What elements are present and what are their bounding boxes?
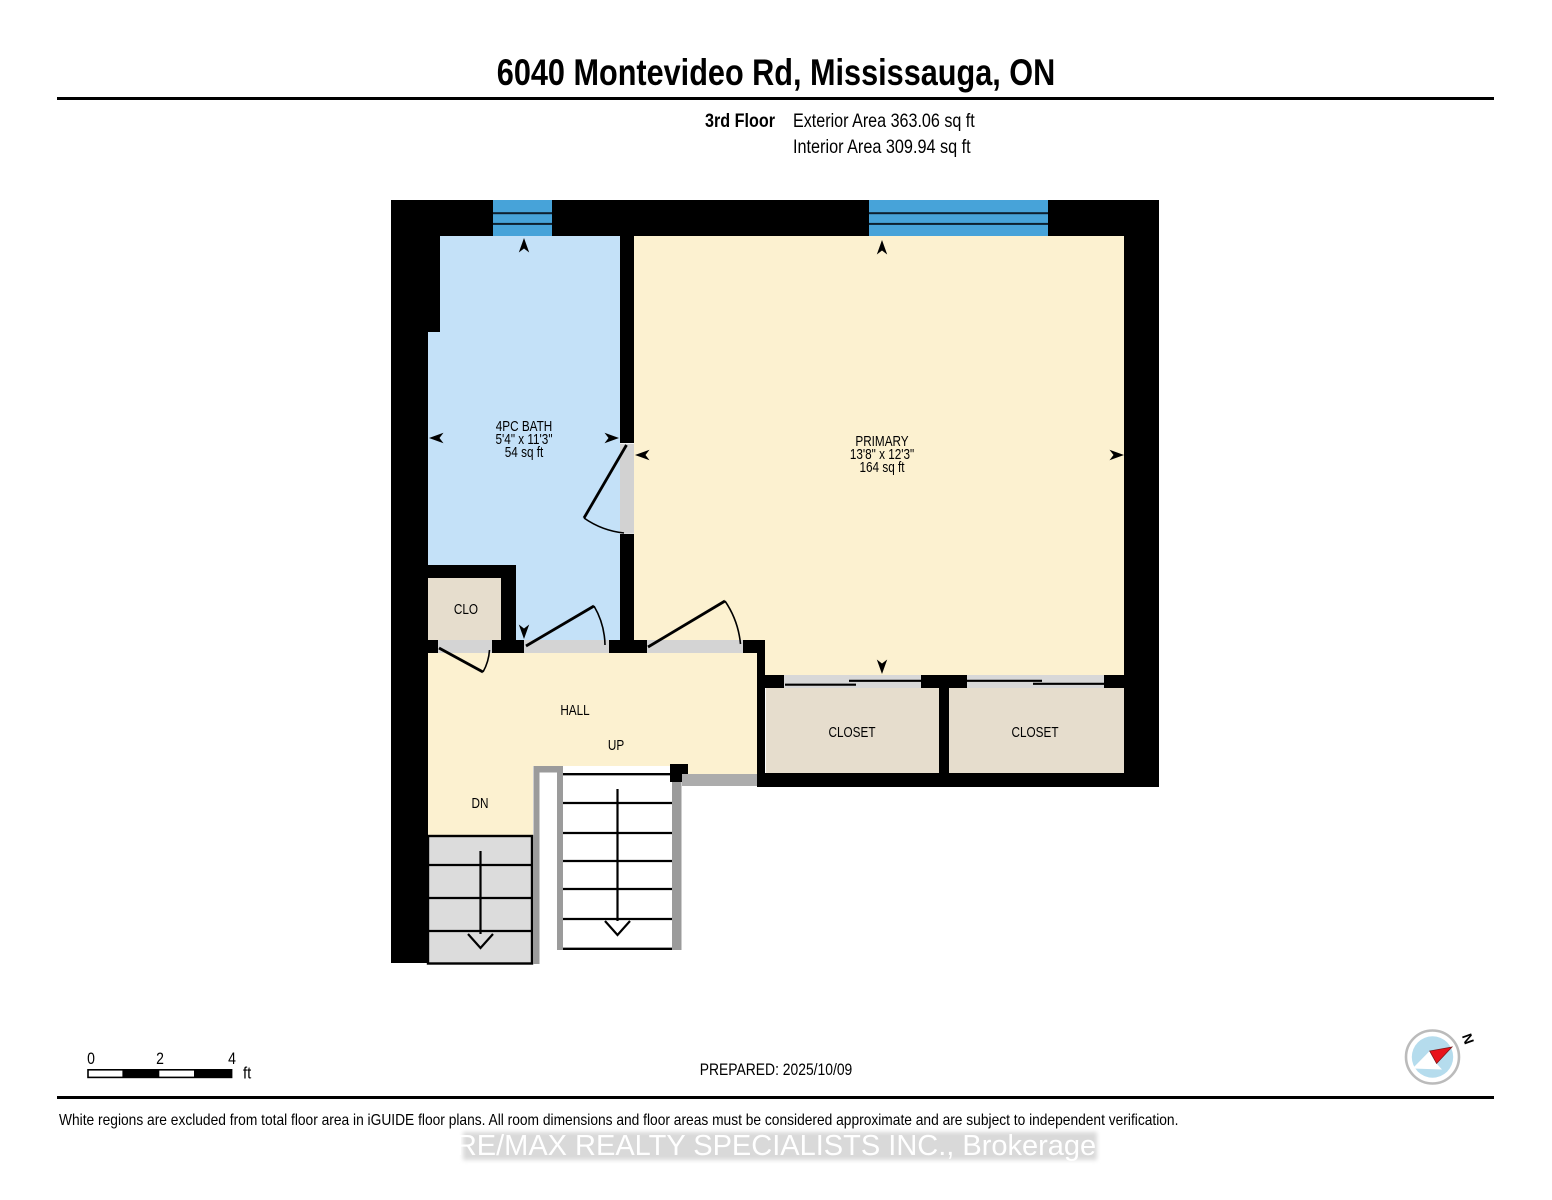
svg-text:HALL: HALL — [560, 702, 589, 718]
svg-text:PREPARED: 2025/10/09: PREPARED: 2025/10/09 — [700, 1061, 853, 1079]
svg-text:ft: ft — [243, 1065, 252, 1083]
svg-text:DN: DN — [472, 795, 489, 811]
svg-text:CLOSET: CLOSET — [829, 724, 876, 740]
svg-text:CLOSET: CLOSET — [1012, 724, 1059, 740]
svg-text:N: N — [1459, 1031, 1477, 1046]
svg-text:164 sq ft: 164 sq ft — [859, 459, 904, 475]
svg-text:UP: UP — [608, 737, 624, 753]
svg-text:0: 0 — [87, 1050, 95, 1068]
svg-text:54 sq ft: 54 sq ft — [505, 444, 544, 460]
svg-text:2: 2 — [156, 1050, 164, 1068]
svg-text:4: 4 — [228, 1050, 236, 1068]
svg-text:CLO: CLO — [454, 601, 478, 617]
